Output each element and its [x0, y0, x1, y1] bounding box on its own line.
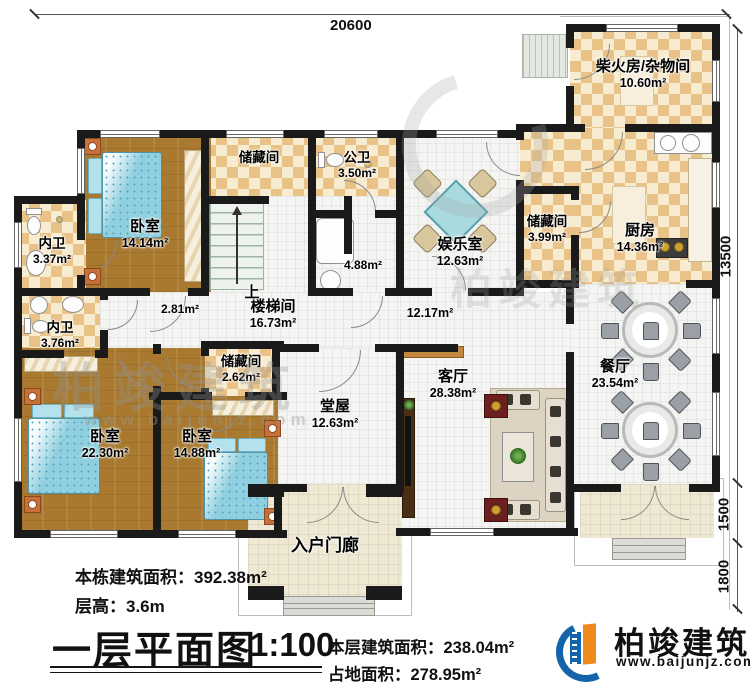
window [430, 528, 494, 536]
bed-pillow [64, 404, 94, 418]
room-label-living: 客厅 28.38m² [408, 368, 498, 400]
wall [245, 392, 287, 400]
room-label-storage-top: 储藏间 [216, 150, 302, 166]
toilet-icon [27, 216, 41, 235]
logo-website: www.baijunjz.com [616, 654, 750, 669]
wall [516, 186, 579, 194]
window [77, 148, 85, 194]
room-name: 入户门廊 [262, 536, 388, 556]
room-area: 28.38m² [408, 386, 498, 401]
room-area: 3.99m² [514, 230, 580, 244]
wall [396, 344, 458, 352]
room-label-hall-small: 2.81m² [148, 302, 212, 316]
chair [601, 323, 619, 339]
wall [14, 196, 85, 204]
chair [683, 423, 701, 439]
nightstand [264, 420, 281, 437]
room-label-entertainment: 娱乐室 12.63m² [410, 236, 510, 268]
room-name: 内卫 [22, 236, 82, 252]
floor-height-value: 3.6m [126, 597, 165, 616]
kitchen-sink-icon [682, 134, 700, 152]
bed-pillow [32, 404, 62, 418]
window [178, 530, 236, 538]
room-name: 卧室 [152, 428, 242, 446]
sofa-pillow [520, 394, 531, 405]
wall [468, 288, 524, 296]
wall [566, 484, 621, 492]
room-label-stair-hall: 楼梯间 16.73m² [228, 298, 318, 330]
bed-pillow [238, 438, 266, 452]
wall [274, 344, 319, 352]
tv-icon [405, 416, 411, 486]
room-area: 3.37m² [22, 252, 82, 266]
floor-height-row: 层高：3.6m [75, 592, 165, 617]
dimension-right-bottom: 1800 [716, 555, 733, 599]
sink-icon [62, 296, 84, 313]
sofa-pillow [550, 436, 561, 447]
plant-icon [404, 400, 414, 410]
wall [14, 350, 64, 358]
stairs-up-arrowhead [232, 206, 242, 215]
room-label-storage-262: 储藏间 2.62m² [206, 354, 276, 384]
wall [201, 196, 269, 204]
room-label-hall-main: 12.17m² [392, 306, 468, 321]
wall [686, 280, 720, 288]
wall [201, 130, 209, 296]
room-area: 12.17m² [392, 306, 468, 321]
nightstand [24, 388, 41, 405]
room-label-chaihuofang: 柴火房/杂物间 10.60m² [576, 58, 710, 90]
window [712, 60, 720, 102]
dimension-top-value: 20600 [330, 17, 372, 34]
room-storage-top [205, 134, 312, 200]
dimension-line-right [737, 28, 738, 612]
wall [396, 344, 404, 492]
kitchen-sink-icon [660, 135, 676, 151]
wall [201, 388, 209, 400]
dining-table [614, 294, 686, 366]
room-area: 12.63m² [290, 416, 380, 431]
room-name: 娱乐室 [410, 236, 510, 254]
chair [643, 463, 659, 481]
window [50, 530, 118, 538]
room-area: 14.14m² [100, 236, 190, 251]
window [606, 24, 678, 32]
window [436, 130, 498, 138]
toilet-tank [26, 208, 42, 215]
sink-icon [30, 296, 48, 314]
wall [77, 288, 150, 296]
wardrobe [184, 150, 202, 282]
room-name: 餐厅 [570, 358, 660, 376]
floor-area-value: 238.04m² [444, 639, 515, 657]
building-area-row: 本栋建筑面积：392.38m² [75, 563, 267, 588]
room-area: 12.63m² [410, 254, 510, 269]
floor-height-label: 层高： [75, 597, 126, 616]
logo-building-icon [570, 632, 581, 664]
floor-area-label: 本层建筑面积： [328, 639, 444, 657]
floor-drain-icon [56, 216, 63, 223]
room-storage-399 [520, 128, 575, 284]
room-area: 10.60m² [576, 76, 710, 91]
window [324, 130, 378, 138]
wall [77, 275, 85, 296]
wall [153, 344, 161, 354]
room-label-storage-399: 储藏间 3.99m² [514, 214, 580, 244]
side-terrace [522, 34, 568, 78]
wall [566, 284, 574, 324]
building-area-value: 392.38m² [194, 568, 267, 587]
wall [566, 124, 585, 132]
nightstand [84, 138, 101, 155]
wardrobe [24, 356, 98, 372]
stairs-up-label: 上 [240, 284, 264, 302]
porch-pier [248, 484, 284, 497]
bed-pillow [88, 158, 102, 194]
room-name: 柴火房/杂物间 [576, 58, 710, 76]
window [712, 162, 720, 208]
window [14, 222, 22, 268]
wall [571, 186, 579, 200]
wall [516, 124, 524, 140]
card-table [432, 188, 476, 232]
room-name: 卧室 [60, 428, 150, 446]
chair [643, 422, 659, 440]
porch-pier [248, 586, 284, 600]
room-area: 14.88m² [152, 446, 242, 461]
window [100, 130, 160, 138]
room-label-dining: 餐厅 23.54m² [570, 358, 660, 390]
room-label-kitchen: 厨房 14.36m² [590, 222, 690, 254]
room-name: 厨房 [590, 222, 690, 240]
entry-steps [283, 596, 375, 616]
room-area: 14.36m² [590, 240, 690, 255]
nightstand [24, 496, 41, 513]
window [14, 418, 22, 482]
room-label-public-bath: 公卫 3.50m² [316, 150, 398, 180]
room-name: 储藏间 [206, 354, 276, 370]
wardrobe [212, 400, 274, 416]
wall [308, 210, 344, 218]
logo-building-icon [583, 623, 596, 664]
wall [77, 196, 85, 240]
nightstand [84, 268, 101, 285]
dimension-line-top [34, 14, 730, 15]
sofa-pillow [550, 492, 561, 503]
footprint-area-row: 占地面积：278.95m² [328, 661, 481, 685]
stairs-up-arrow [236, 214, 238, 284]
room-area: 3.50m² [316, 166, 398, 180]
chair [643, 322, 659, 340]
room-area: 16.73m² [228, 316, 318, 331]
wall [153, 392, 161, 538]
back-steps [612, 538, 686, 560]
floor-plan-canvas: 柏竣建筑 www.baijunjz.com 柏竣建筑 20600 13500 1… [0, 0, 750, 691]
porch-pier [366, 586, 402, 600]
room-label-bath-488: 4.88m² [330, 258, 396, 272]
sofa-pillow [520, 504, 531, 515]
room-area: 4.88m² [330, 258, 396, 272]
room-area: 22.30m² [60, 446, 150, 461]
window [712, 392, 720, 456]
dimension-right-main: 13500 [718, 227, 735, 287]
dimension-right-mid: 1500 [716, 493, 733, 537]
sofa-pillow [550, 406, 561, 417]
stairs-up-text: 上 [240, 284, 264, 302]
room-label-neiwei-1: 内卫 3.37m² [22, 236, 82, 266]
dining-table [614, 394, 686, 466]
room-area: 23.54m² [570, 376, 660, 391]
room-area: 3.76m² [28, 336, 92, 350]
room-label-bedroom-bl: 卧室 22.30m² [60, 428, 150, 460]
end-table [484, 498, 508, 522]
room-label-porch: 入户门廊 [262, 536, 388, 556]
room-name: 卧室 [100, 218, 190, 236]
floor-area-row: 本层建筑面积：238.04m² [328, 634, 514, 658]
chair [601, 423, 619, 439]
footprint-value: 278.95m² [411, 666, 482, 684]
plant-icon [510, 448, 526, 464]
room-name: 储藏间 [216, 150, 302, 166]
wall [188, 288, 209, 296]
room-label-bedroom-tl: 卧室 14.14m² [100, 218, 190, 250]
footprint-label: 占地面积： [328, 666, 411, 684]
wall [625, 124, 720, 132]
wall [344, 196, 352, 254]
room-area: 2.62m² [206, 370, 276, 384]
plan-scale: 1:100 [250, 626, 334, 664]
sofa-pillow [550, 466, 561, 477]
window [226, 130, 284, 138]
building-area-label: 本栋建筑面积： [75, 568, 194, 587]
kitchen-counter [688, 158, 712, 262]
porch-pier [366, 484, 402, 497]
room-name: 堂屋 [290, 398, 380, 416]
room-name: 内卫 [28, 320, 92, 336]
chair [683, 323, 701, 339]
title-underline [50, 666, 322, 673]
wall [689, 484, 720, 492]
window [712, 298, 720, 354]
room-area: 2.81m² [148, 302, 212, 316]
room-label-bedroom-bm: 卧室 14.88m² [152, 428, 242, 460]
room-label-tangwu: 堂屋 12.63m² [290, 398, 380, 430]
room-label-neiwei-2: 内卫 3.76m² [28, 320, 92, 350]
room-name: 客厅 [408, 368, 498, 386]
room-name: 公卫 [316, 150, 398, 166]
wall [100, 330, 108, 358]
wall [100, 288, 108, 300]
room-name: 储藏间 [514, 214, 580, 230]
